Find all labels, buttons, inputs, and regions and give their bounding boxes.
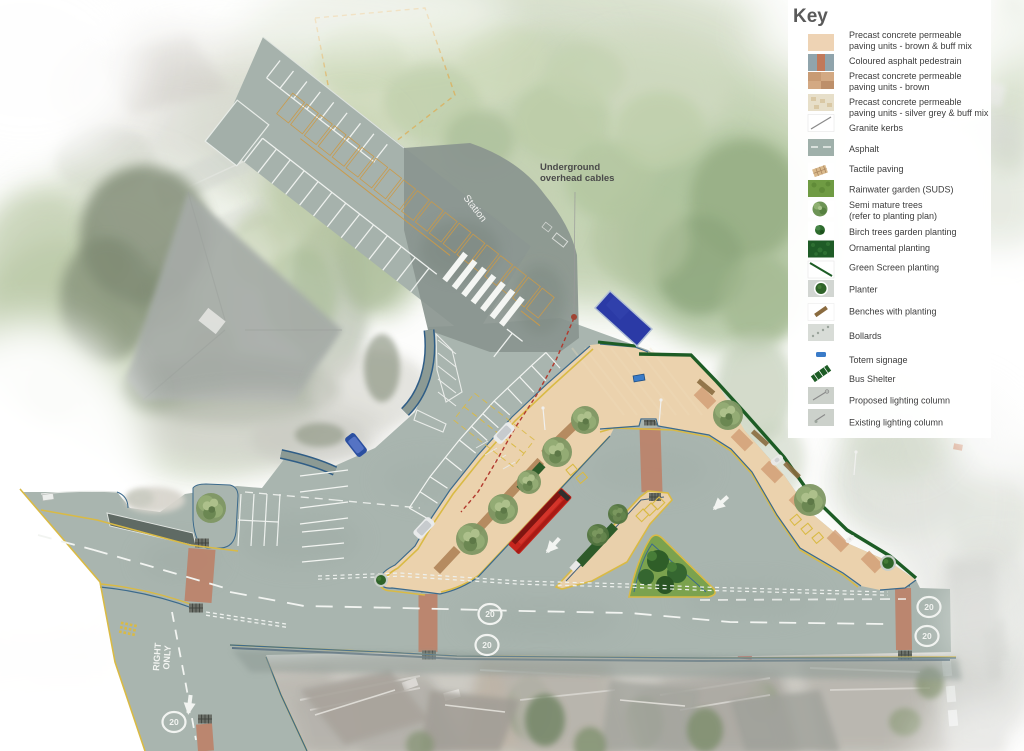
svg-text:Birch trees garden planting: Birch trees garden planting [849, 227, 957, 237]
svg-text:20: 20 [169, 717, 179, 727]
svg-text:20: 20 [922, 631, 932, 641]
svg-text:Semi mature trees: Semi mature trees [849, 200, 923, 210]
svg-text:Asphalt: Asphalt [849, 144, 880, 154]
svg-text:20: 20 [924, 602, 934, 612]
svg-text:Precast concrete permeable: Precast concrete permeable [849, 30, 962, 40]
svg-text:Bus Shelter: Bus Shelter [849, 374, 896, 384]
svg-text:Precast concrete permeable: Precast concrete permeable [849, 97, 962, 107]
svg-text:ONLY: ONLY [161, 645, 173, 670]
svg-text:Coloured asphalt pedestrain: Coloured asphalt pedestrain [849, 56, 962, 66]
svg-text:Ornamental planting: Ornamental planting [849, 243, 930, 253]
svg-text:Totem signage: Totem signage [849, 355, 908, 365]
svg-text:Granite kerbs: Granite kerbs [849, 123, 904, 133]
svg-text:paving units - brown & buff mi: paving units - brown & buff mix [849, 41, 972, 51]
svg-text:20: 20 [485, 609, 495, 619]
svg-text:paving units - brown: paving units - brown [849, 82, 930, 92]
svg-text:(refer to planting plan): (refer to planting plan) [849, 211, 937, 221]
svg-text:Planter: Planter [849, 285, 878, 295]
svg-text:Key: Key [793, 6, 828, 27]
svg-text:Benches with planting: Benches with planting [849, 307, 937, 317]
svg-text:paving units - silver grey & b: paving units - silver grey & buff mix [849, 108, 989, 118]
svg-text:Precast concrete permeable: Precast concrete permeable [849, 71, 962, 81]
svg-text:Tactile paving: Tactile paving [849, 164, 904, 174]
svg-text:Existing lighting column: Existing lighting column [849, 418, 943, 428]
svg-text:Proposed lighting column: Proposed lighting column [849, 396, 950, 406]
svg-text:Rainwater garden (SUDS): Rainwater garden (SUDS) [849, 185, 954, 195]
svg-text:20: 20 [482, 640, 492, 650]
svg-text:Bollards: Bollards [849, 331, 882, 341]
svg-text:Underground: Underground [540, 162, 600, 173]
svg-text:Green Screen planting: Green Screen planting [849, 263, 939, 273]
svg-text:overhead cables: overhead cables [540, 173, 614, 184]
